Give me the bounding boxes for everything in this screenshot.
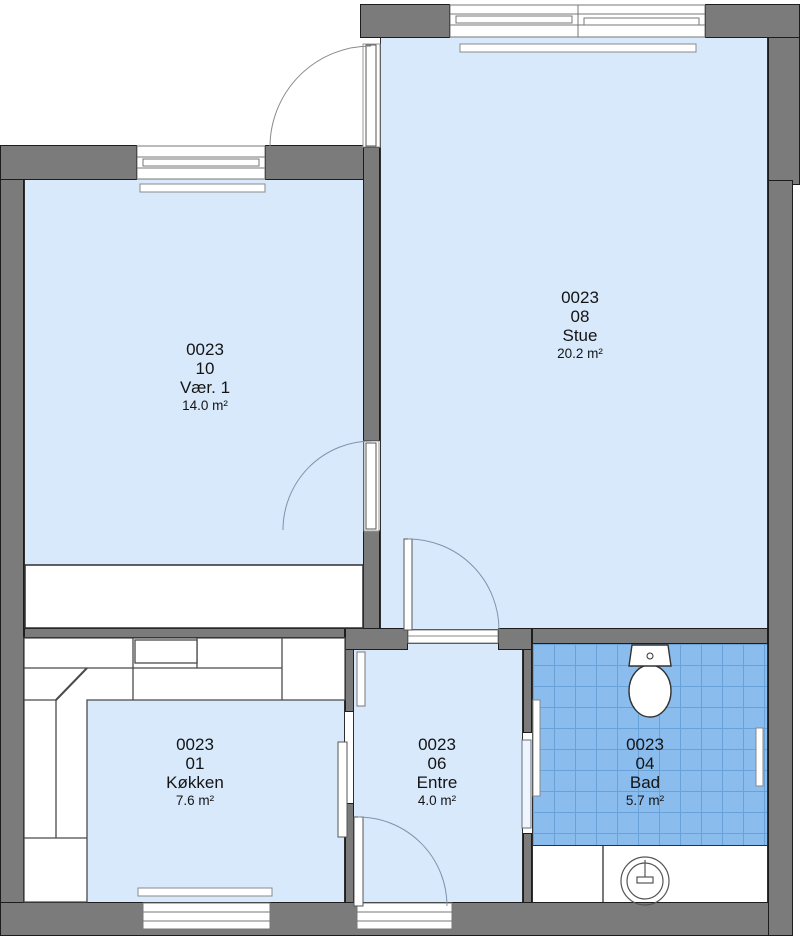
floor-plan: 0023 10 Vær. 1 14.0 m² 0023 08 Stue 20.2… [0,0,800,936]
door-entre-bottom [354,817,447,906]
radiator-vaer1 [140,184,265,192]
door-entre-bottom-opening [357,903,452,929]
room-name: Stue [520,326,640,345]
room-code: 0023 [520,288,640,307]
door-vaer1-arc [283,441,372,530]
room-code: 0023 [377,735,497,754]
bad-wall-niche-left [533,700,540,796]
door-stue-entre [404,539,499,643]
entrance-door-leaf [366,45,376,146]
room-label-vaer1: 0023 10 Vær. 1 14.0 m² [145,340,265,414]
door-entre-bottom-leaf [354,817,363,906]
room-area: 14.0 m² [145,397,265,414]
room-name: Bad [585,773,705,792]
wardrobe [25,565,363,628]
room-label-bad: 0023 04 Bad 5.7 m² [585,735,705,809]
window-stue [450,5,705,37]
door-stue-entre-leaf [404,539,412,630]
room-code: 0023 [145,340,265,359]
entrance-door-arc [270,46,371,147]
room-label-entre: 0023 06 Entre 4.0 m² [377,735,497,809]
radiator-koekken [138,888,272,896]
toilet-bowl [629,665,671,717]
door-vaer1-leaf [366,443,376,529]
room-number: 04 [585,754,705,773]
door-stue-entre-arc [408,539,499,630]
room-area: 20.2 m² [520,345,640,362]
room-area: 4.0 m² [377,792,497,809]
room-label-stue: 0023 08 Stue 20.2 m² [520,288,640,362]
room-area: 5.7 m² [585,792,705,809]
bad-wall-niche-right [756,728,763,786]
room-name: Køkken [135,773,255,792]
room-number: 01 [135,754,255,773]
room-number: 06 [377,754,497,773]
door-vaer1 [283,441,379,531]
room-code: 0023 [135,735,255,754]
window-koekken [143,903,270,929]
washbasin-icon [621,857,669,905]
room-area: 7.6 m² [135,792,255,809]
radiator-stue [460,44,696,52]
door-entre-bottom-arc [358,817,447,906]
room-number: 08 [520,307,640,326]
room-name: Entre [377,773,497,792]
window-vaer1 [137,146,265,179]
kitchen-sink [135,640,197,663]
room-label-koekken: 0023 01 Køkken 7.6 m² [135,735,255,809]
room-number: 10 [145,359,265,378]
room-code: 0023 [585,735,705,754]
door-bad-leaf [522,740,531,828]
entre-door-jamb [357,652,365,706]
entrance-door [270,44,380,147]
room-name: Vær. 1 [145,378,265,397]
toilet-icon [629,645,671,717]
door-koekken-leaf [338,742,347,837]
